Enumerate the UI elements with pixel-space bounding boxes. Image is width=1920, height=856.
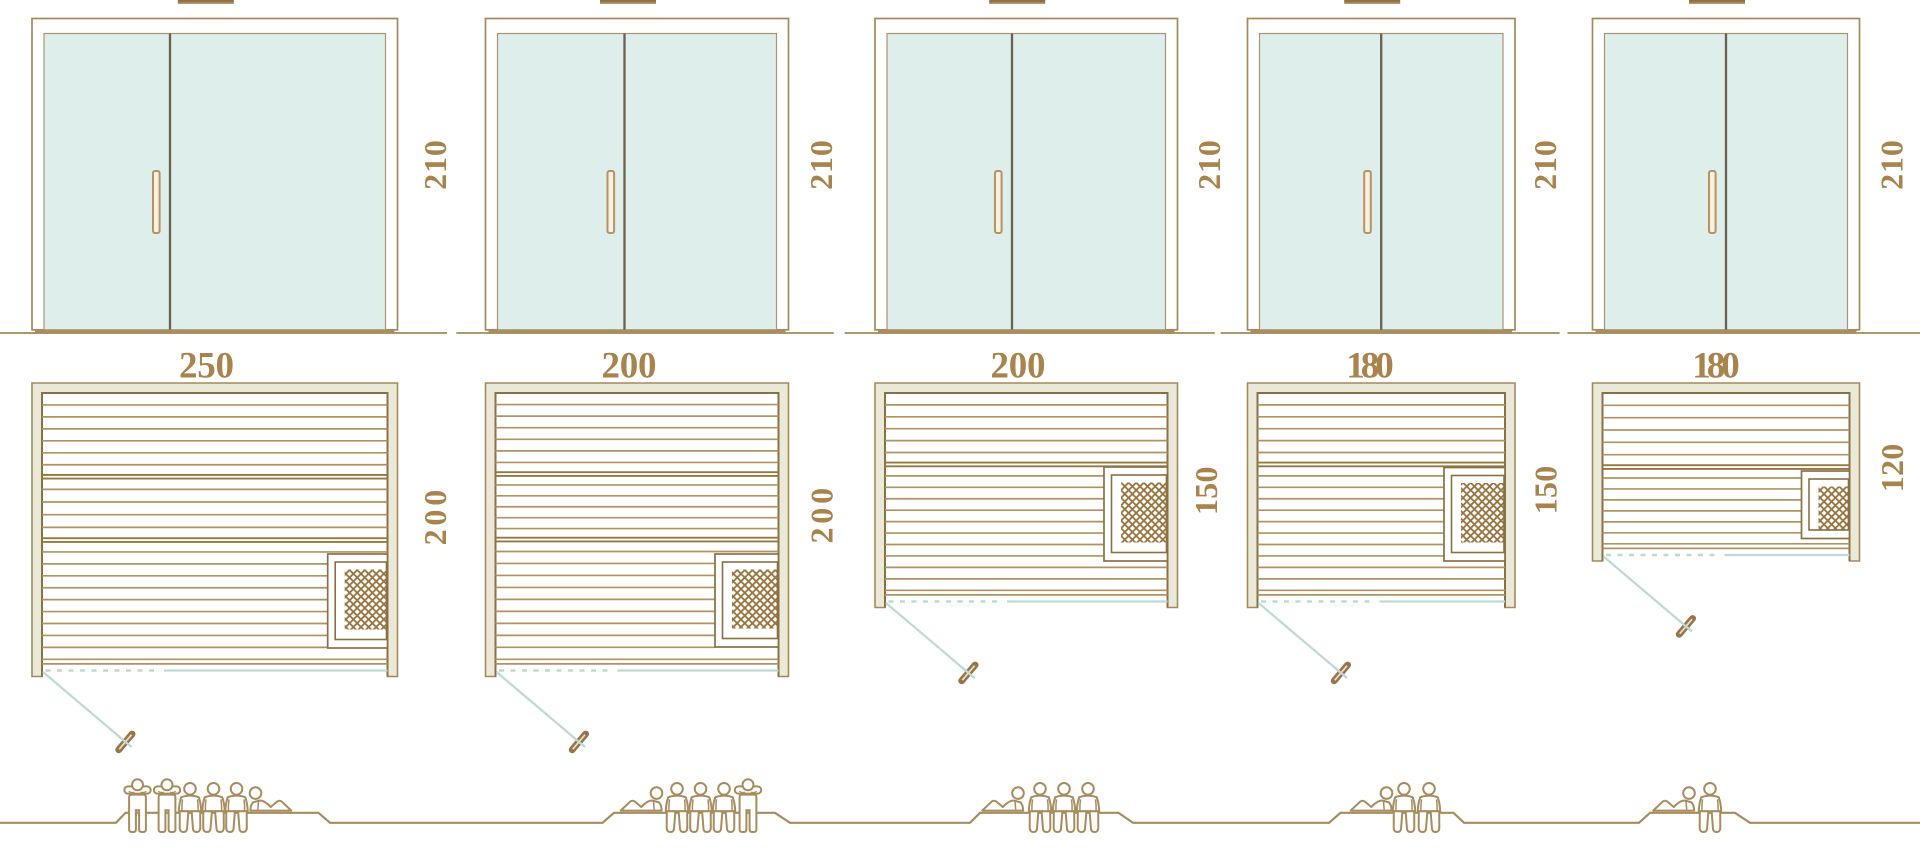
svg-text:200: 200 [991, 346, 1046, 387]
svg-text:200: 200 [417, 490, 453, 546]
svg-text:250: 250 [179, 346, 234, 387]
svg-text:210: 210 [1874, 140, 1910, 190]
svg-text:210: 210 [1191, 140, 1227, 190]
svg-text:180: 180 [1692, 346, 1740, 387]
svg-text:120: 120 [1874, 444, 1910, 493]
svg-text:210: 210 [417, 140, 453, 190]
svg-text:210: 210 [1527, 140, 1563, 190]
svg-text:180: 180 [1346, 346, 1394, 387]
svg-text:150: 150 [1528, 466, 1564, 515]
svg-text:200: 200 [602, 346, 657, 387]
svg-text:200: 200 [803, 488, 839, 544]
svg-text:210: 210 [803, 140, 839, 190]
svg-text:150: 150 [1188, 466, 1224, 515]
